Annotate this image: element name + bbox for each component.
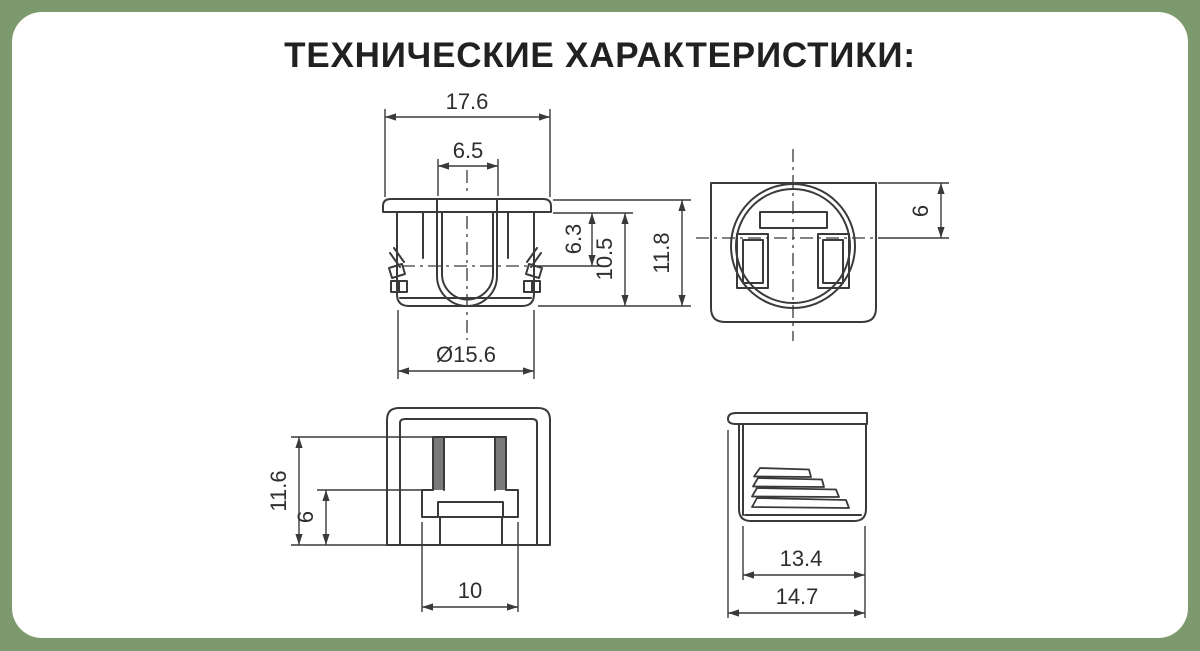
dimension-diameter: Ø15.6 [398, 310, 534, 379]
front-section-view: 17.6 6.5 Ø15.6 6.3 10.5 11.8 [383, 89, 691, 379]
barb-step-3 [752, 488, 839, 497]
dim-label-foot-width: 10 [458, 578, 482, 603]
dimension-foot-width: 10 [422, 522, 518, 612]
dim-label-body-height: 10.5 [592, 238, 617, 281]
dim-label-total-height: 11.8 [649, 232, 674, 273]
barb-step-4 [752, 498, 849, 508]
front-centerlines [402, 170, 533, 340]
dim-label-height: 11.6 [266, 470, 291, 511]
dimension-lock-depth: 6.3 [561, 213, 596, 266]
dimension-flange-offset: 6 [878, 183, 949, 238]
side-reference-lines [291, 437, 433, 545]
dim-label-lower-height: 6 [293, 511, 318, 523]
dimension-body-height: 10.5 [592, 213, 629, 306]
dimension-total-height: 11.8 [649, 200, 686, 306]
back-side-view: 13.4 14.7 [728, 413, 867, 618]
barb-step-2 [753, 478, 824, 487]
slot-wall-shading-right [495, 437, 506, 490]
dimension-slot-width: 6.5 [438, 138, 498, 196]
dimension-height: 11.6 [266, 437, 303, 545]
dimension-overall-width: 14.7 [728, 430, 865, 618]
slot-wall-shading-left [433, 437, 444, 490]
barb-step-1 [754, 468, 811, 477]
technical-drawing: 17.6 6.5 Ø15.6 6.3 10.5 11.8 [0, 0, 1200, 651]
side-section-view: 11.6 6 10 [266, 408, 550, 612]
dim-label-overall-width: 14.7 [776, 584, 819, 609]
dim-label-diameter: Ø15.6 [436, 342, 496, 367]
dim-label-outer-width: 17.6 [446, 89, 489, 114]
dim-label-slot-width: 6.5 [453, 138, 484, 163]
side-outline [387, 408, 550, 545]
dim-label-flange-offset: 6 [908, 205, 933, 217]
dim-label-lock-depth: 6.3 [561, 224, 586, 255]
dim-label-body-width: 13.4 [780, 546, 823, 571]
top-view: 6 [696, 149, 949, 341]
